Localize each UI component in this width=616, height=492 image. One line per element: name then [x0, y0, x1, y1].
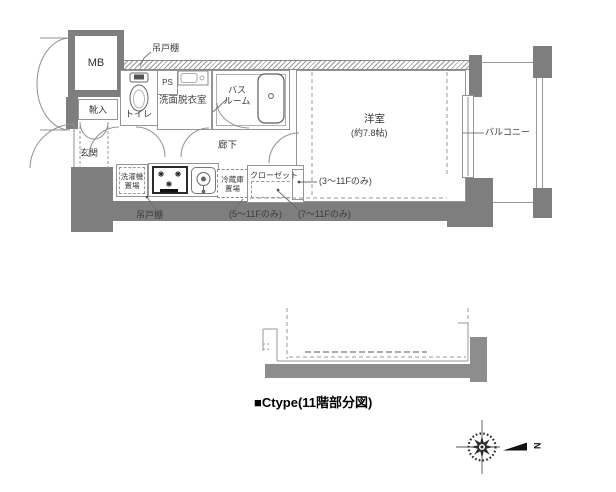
mb-box-inner: MB: [75, 36, 117, 90]
ps-box: PS: [157, 70, 178, 95]
sliding-door: [462, 95, 474, 178]
label-entrance: 玄関: [80, 148, 98, 158]
label-washroom: 洗面脱衣室: [159, 96, 207, 107]
lower-column: [470, 337, 487, 382]
hatched-wall-band: [122, 60, 472, 70]
balcony-rail: [536, 78, 543, 188]
fridge-label-line2: 置場: [221, 184, 244, 193]
fridge-label: 冷蔵庫 置場: [221, 175, 244, 193]
label-closet: クローゼット: [250, 171, 298, 180]
label-bathroom: バス ルーム: [214, 85, 260, 107]
sink: [191, 167, 216, 194]
label-bathroom-line1: バス: [214, 85, 260, 96]
label-balcony: バルコニー: [485, 127, 530, 137]
compass-icon: N: [456, 420, 542, 474]
label-western-room: 洋室: [364, 113, 385, 125]
stove: [152, 166, 188, 194]
washroom-door-arc-icon: [136, 127, 165, 157]
hall-door-arc-icon: [181, 128, 209, 157]
lower-band: [265, 364, 470, 378]
room-door-arc-icon: [269, 133, 299, 163]
balcony-rail-top-block: [533, 46, 552, 78]
floor-plan-page: PS 靴入 洗濯機 置場 冷蔵庫 置場 MB: [0, 0, 616, 492]
mb-wall-strip: [66, 97, 78, 129]
note-floors-5-11: (5〜11Fのみ): [229, 209, 282, 219]
lower-diagram-lines: [263, 308, 468, 361]
north-label: N: [532, 443, 542, 450]
label-hall: 廊下: [218, 141, 237, 152]
fridge-label-line1: 冷蔵庫: [221, 175, 244, 184]
bottom-left-wall: [71, 167, 113, 232]
fridge-box: 冷蔵庫 置場: [217, 169, 248, 198]
mb-door-top-arc-icon: [37, 38, 70, 84]
shoe-box: 靴入: [78, 99, 118, 120]
laundry-box-dashed: [119, 167, 145, 194]
balcony-bottom-line: [493, 202, 533, 203]
label-bathroom-line2: ルーム: [214, 96, 260, 107]
caption: ■Ctype(11階部分図): [254, 396, 372, 411]
note-floors-7-11: (7〜11Fのみ): [298, 209, 351, 219]
label-western-room-size: (約7.8帖): [351, 128, 388, 138]
label-shoe-box: 靴入: [89, 103, 107, 116]
note-floors-3-11: (3〜11Fのみ): [319, 176, 372, 186]
balcony-top-line: [481, 62, 533, 63]
note-hanging-cupboard-top: 吊戸棚: [152, 43, 179, 53]
entrance-door-arc-icon: [30, 124, 74, 168]
label-toilet: トイレ: [125, 109, 152, 119]
shoe-cabinet-door-arc-icon: [94, 122, 108, 139]
label-ps: PS: [162, 78, 173, 87]
balcony-rail-bottom-block: [533, 188, 552, 218]
shoe-cabinet-door-arc-icon: [80, 122, 94, 139]
note-hanging-cupboard-bottom: 吊戸棚: [136, 210, 163, 220]
north-arrow-icon: N: [503, 443, 542, 451]
label-mb-text: MB: [88, 57, 105, 69]
